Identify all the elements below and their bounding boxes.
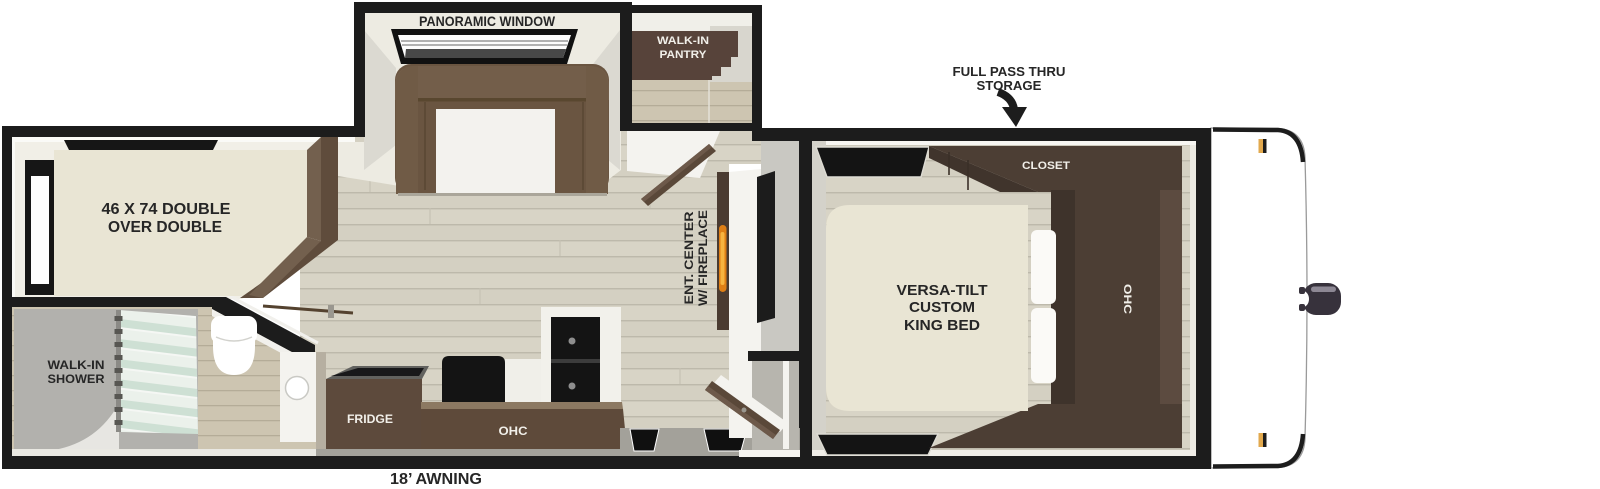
svg-text:18’ AWNING: 18’ AWNING [390,471,482,488]
svg-text:ENT. CENTER: ENT. CENTER [684,211,696,305]
svg-text:FRIDGE: FRIDGE [347,414,393,426]
svg-text:CUSTOM: CUSTOM [909,299,975,316]
svg-text:STORAGE: STORAGE [977,78,1042,93]
svg-text:WALK-IN: WALK-IN [657,35,709,47]
svg-text:OVER DOUBLE: OVER DOUBLE [108,219,222,236]
svg-text:VERSA-TILT: VERSA-TILT [897,282,988,299]
svg-text:46 X 74 DOUBLE: 46 X 74 DOUBLE [102,201,231,218]
svg-text:OHC: OHC [1121,284,1133,314]
svg-text:SHOWER: SHOWER [48,372,105,386]
svg-text:KING BED: KING BED [904,317,980,334]
svg-text:W/ FIREPLACE: W/ FIREPLACE [698,210,710,306]
svg-text:CLOSET: CLOSET [1022,160,1070,172]
svg-text:PANORAMIC WINDOW: PANORAMIC WINDOW [419,13,556,29]
svg-text:OHC: OHC [499,424,528,438]
svg-text:FULL PASS THRU: FULL PASS THRU [953,64,1066,79]
svg-text:PANTRY: PANTRY [660,49,708,61]
svg-text:WALK-IN: WALK-IN [48,358,105,372]
